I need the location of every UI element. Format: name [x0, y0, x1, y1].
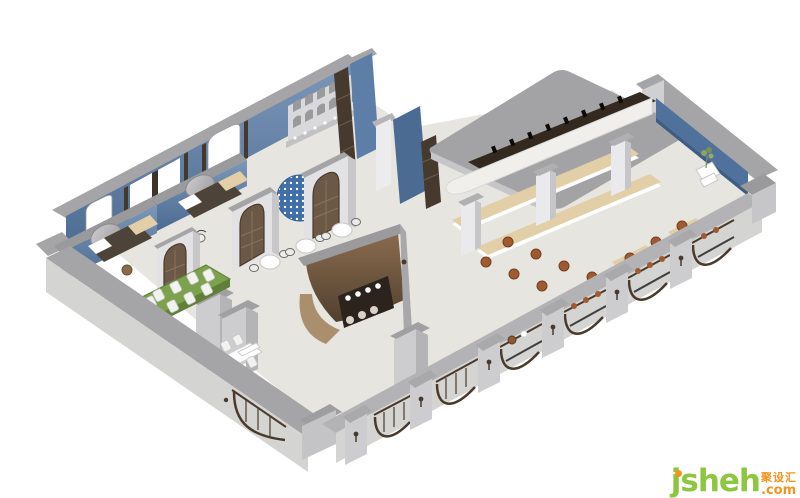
watermark-cjk: 聚设汇: [761, 472, 797, 483]
isometric-scene: [0, 0, 800, 498]
rendering-canvas: jsheh 聚设汇 .com: [0, 0, 800, 498]
watermark-brand: jsheh: [671, 466, 760, 497]
barrel-stool: [122, 265, 132, 275]
watermark-logo: jsheh 聚设汇 .com: [671, 466, 797, 497]
watermark-suffix: .com: [761, 484, 796, 497]
watermark-dot-icon: [675, 470, 682, 477]
